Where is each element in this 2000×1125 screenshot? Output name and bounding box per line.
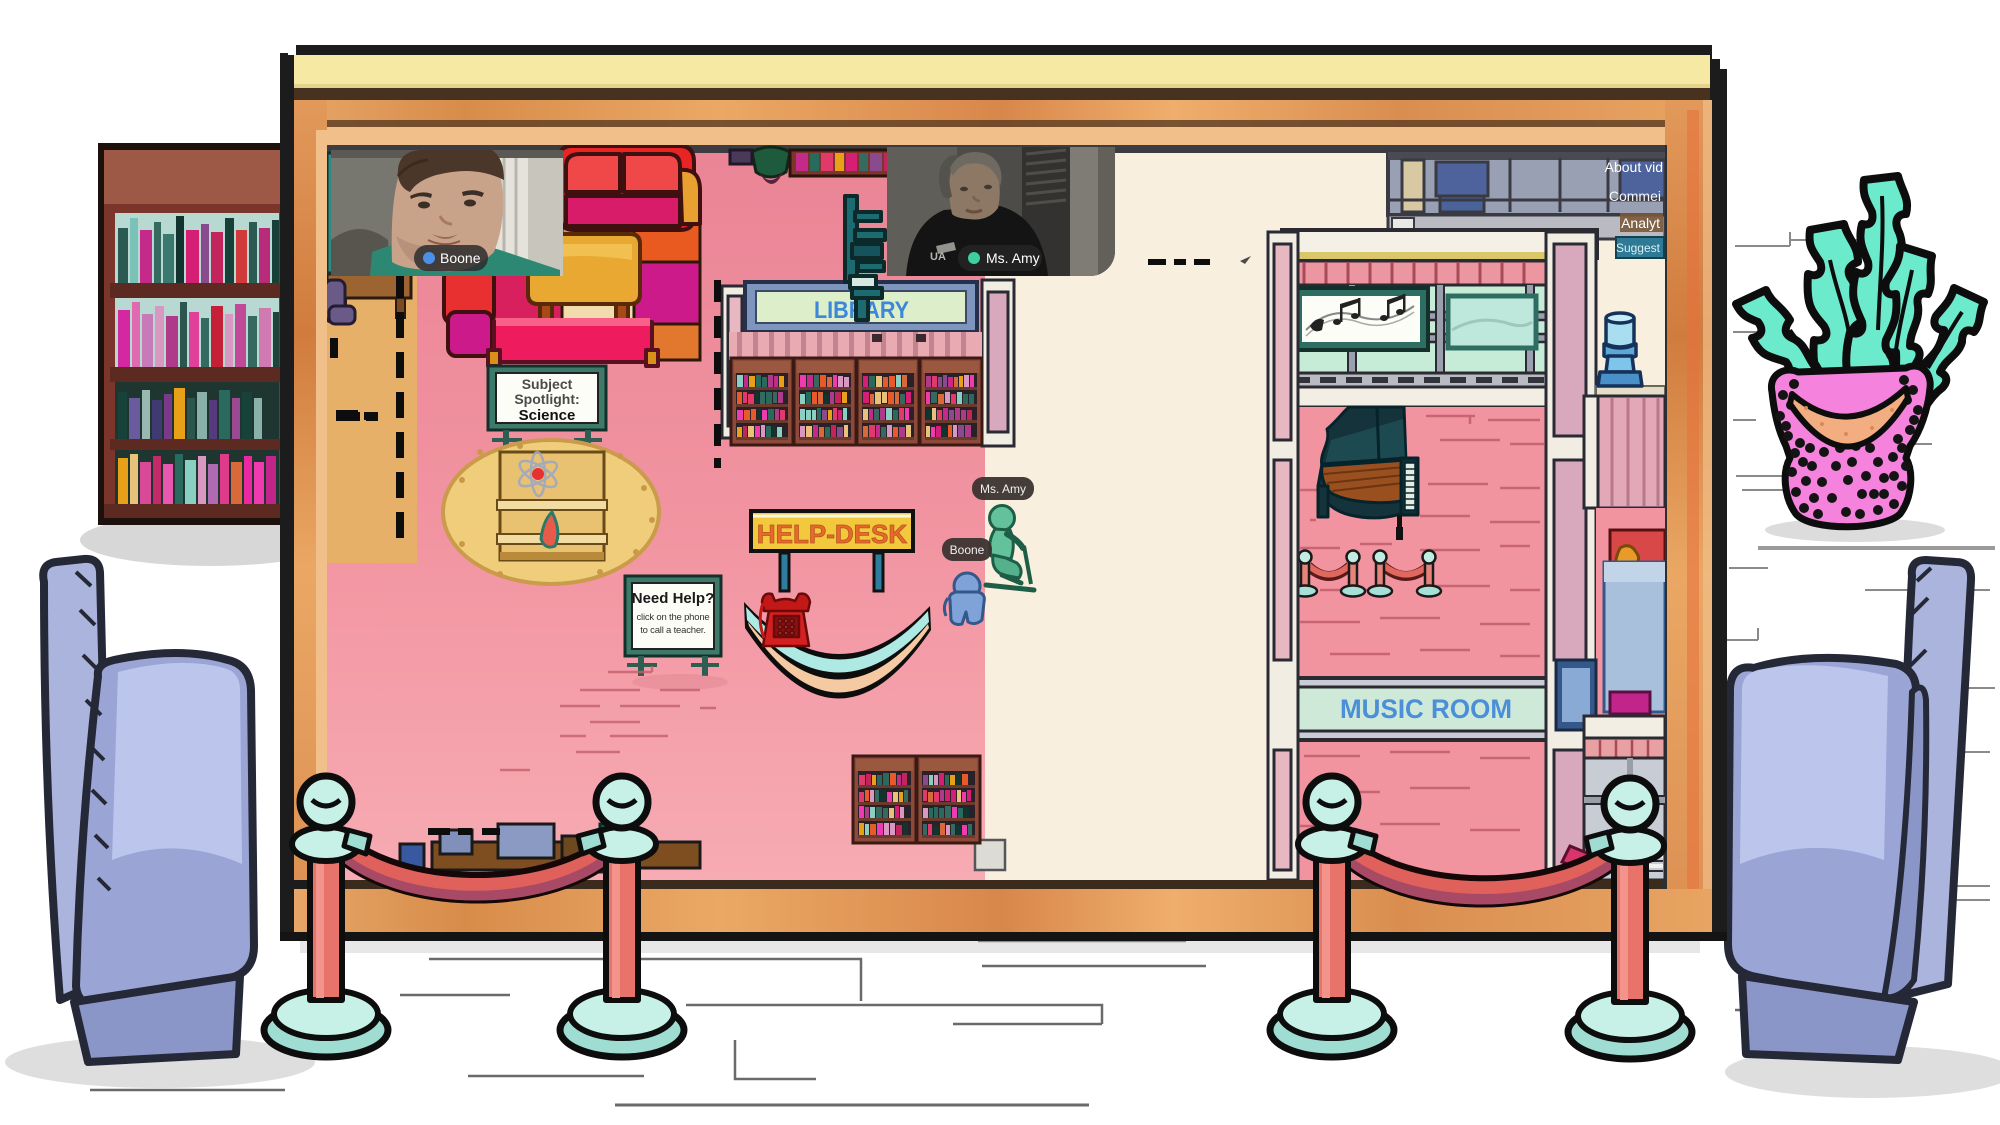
- svg-text:Spotlight:: Spotlight:: [514, 391, 579, 407]
- svg-text:Suggest: Suggest: [1616, 241, 1661, 255]
- svg-text:to call a teacher.: to call a teacher.: [640, 625, 706, 636]
- svg-text:Commei: Commei: [1609, 188, 1661, 204]
- svg-text:MUSIC ROOM: MUSIC ROOM: [1340, 694, 1512, 724]
- svg-text:About vid: About vid: [1605, 159, 1663, 175]
- svg-text:Ms. Amy: Ms. Amy: [980, 482, 1026, 496]
- svg-text:Boone: Boone: [440, 250, 481, 266]
- svg-text:click on the phone: click on the phone: [637, 612, 710, 623]
- svg-text:Science: Science: [519, 407, 576, 424]
- svg-text:UA: UA: [930, 251, 946, 263]
- svg-text:Need Help?: Need Help?: [632, 590, 715, 607]
- svg-text:HELP-DESK: HELP-DESK: [757, 519, 907, 549]
- svg-text:Subject: Subject: [522, 376, 573, 392]
- svg-text:Analyt: Analyt: [1621, 215, 1660, 231]
- svg-text:Ms. Amy: Ms. Amy: [986, 250, 1040, 266]
- svg-text:Boone: Boone: [950, 543, 985, 557]
